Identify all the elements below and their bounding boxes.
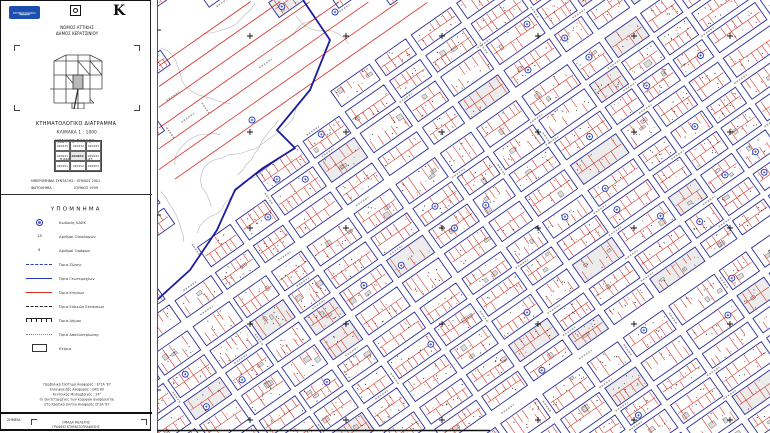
legend-symbol (19, 264, 59, 265)
line-dashdot-gray-icon (26, 334, 52, 335)
panel-divider (1, 194, 152, 195)
sheet-code-cell: 020932 (70, 141, 85, 151)
footer-left-label: ΣΗΜΕΙΑ (7, 418, 21, 422)
line-dashed-black-icon (26, 306, 52, 307)
region-block: ΝΟΜΟΣ ΑΤΤΙΚΗΣ ΔΗΜΟΣ ΚΕΡΑΤΣΙΝΙΟΥ (1, 25, 152, 37)
photo-date-line: ΦΩΤΟΛΗΨΙΑ : ΙΟΥΝΙΟΣ 1999 (31, 186, 98, 190)
photo-date-label: ΦΩΤΟΛΗΨΙΑ : (31, 186, 54, 190)
legend-symbol (19, 278, 59, 279)
legend-label: Κωδικός ΚΑΕΚ (59, 220, 86, 225)
legend-label: Κτίρια (59, 346, 71, 351)
survey-date: ΗΜΕΡΟΜΗΝΙΑ ΣΥΝΤΑΞΗΣ : ΙΟΥΝΙΟΣ 2001 (31, 179, 100, 183)
legend-label: Όρια Ειδικών Εκτάσεων (59, 304, 104, 309)
legend-item: Όρια Απαλλοτρίωσης (19, 327, 147, 341)
number-icon: 15 (37, 234, 42, 238)
fine-print-line: στο Κρατικό Δίκτυο Αναφοράς ΕΓΣΑ '87 (1, 402, 152, 407)
legend-item: 15Αριθμοί Οικοδομών (19, 229, 147, 243)
footer-org-line2: ΓΡΑΦΕΙΟ ΚΤΗΜΑΤΟΓΡΑΦΗΣΗΣ (27, 425, 126, 429)
legend-symbol (19, 318, 59, 322)
legend-label: Όρια Κτιρίων (59, 290, 84, 295)
kaek-circle-icon (36, 219, 43, 226)
legend-label: Όρια Ζώνης (59, 262, 82, 267)
sheet-code-cell: 020931 (55, 141, 70, 151)
ktimatologio-logo: ΚΤΗΜΑΤΟΛΟΓΙΟ (9, 6, 40, 19)
legend: Κωδικός ΚΑΕΚ15Αριθμοί Οικοδομών8Αριθμοί … (19, 215, 147, 355)
legend-item: Κτίρια (19, 341, 147, 355)
legend-title: ΥΠΟΜΝΗΜΑ (51, 206, 102, 212)
legend-item: Κωδικός ΚΑΕΚ (19, 215, 147, 229)
legend-label: Όρια Δήμου (59, 318, 81, 323)
region-line2: ΔΗΜΟΣ ΚΕΡΑΤΣΙΝΙΟΥ (1, 31, 152, 37)
number-small-icon: 8 (38, 248, 40, 252)
legend-symbol (19, 219, 59, 226)
crop-mark-icon (134, 45, 140, 51)
legend-item: Όρια Κτιρίων (19, 285, 147, 299)
photo-date-value: ΙΟΥΝΙΟΣ 1999 (74, 186, 98, 190)
legend-label: Όρια Γεωτεμαχίων (59, 276, 94, 281)
adjacent-sheets-table: 0209310209320209330209410209420209430209… (54, 140, 102, 172)
sheet-code-cell: 020943 (86, 151, 101, 161)
legend-label: Αριθμοί Ορόφων (59, 248, 90, 253)
line-blue-icon (26, 278, 52, 279)
sheet-code-cell: 020952 (70, 161, 85, 171)
sheet-code-cell: 020933 (86, 141, 101, 151)
legend-item: Όρια Δήμου (19, 313, 147, 327)
footer-org-block: ΟΜΑΔΑ ΜΕΛΕΤΗΣ ΓΡΑΦΕΙΟ ΚΤΗΜΑΤΟΓΡΑΦΗΣΗΣ (27, 421, 126, 429)
sheet-code-cell: 020953 (86, 161, 101, 171)
legend-item: Όρια Ειδικών Εκτάσεων (19, 299, 147, 313)
line-dashed-blue-icon (26, 264, 52, 265)
legend-label: Αριθμοί Οικοδομών (59, 234, 96, 239)
crop-mark-icon (14, 45, 20, 51)
building-rect-icon (32, 344, 47, 352)
title-panel: ΚΤΗΜΑΤΟΛΟΓΙΟ Κ ΝΟΜΟΣ ΑΤΤΙΚΗΣ ΔΗΜΟΣ ΚΕΡΑΤ… (0, 0, 151, 431)
fine-print: Προβολικό Σύστημα Αναφοράς : ΕΓΣΑ '87Ελλ… (1, 382, 152, 407)
sheet-code-cell: 020951 (55, 161, 70, 171)
current-sheet-cell (73, 75, 83, 89)
legend-item: Όρια Ζώνης (19, 257, 147, 271)
panel-divider-bottom (1, 412, 152, 414)
legend-symbol: 15 (19, 232, 59, 240)
logo-text: ΚΤΗΜΑΤΟΛΟΓΙΟ (13, 11, 36, 14)
crop-mark-icon (141, 419, 147, 425)
sheet-code-cell: 020941 (55, 151, 70, 161)
legend-symbol (19, 292, 59, 293)
legend-item: Όρια Γεωτεμαχίων (19, 271, 147, 285)
line-ticks-black-icon (26, 318, 52, 322)
legend-symbol (19, 344, 59, 352)
ministry-emblem-icon (70, 5, 81, 16)
crop-mark-icon (14, 105, 20, 111)
map-frame-layer (157, 0, 490, 433)
k-logo-icon: Κ (113, 3, 124, 19)
locator-map (44, 47, 108, 109)
legend-symbol: 8 (19, 246, 59, 254)
legend-symbol (19, 306, 59, 307)
sheet-code-cell: 020942 (70, 151, 85, 161)
legend-symbol (19, 334, 59, 335)
cadastral-map (157, 0, 770, 433)
legend-item: 8Αριθμοί Ορόφων (19, 243, 147, 257)
line-red-icon (26, 292, 52, 293)
legend-label: Όρια Απαλλοτρίωσης (59, 332, 99, 337)
crop-mark-icon (134, 105, 140, 111)
